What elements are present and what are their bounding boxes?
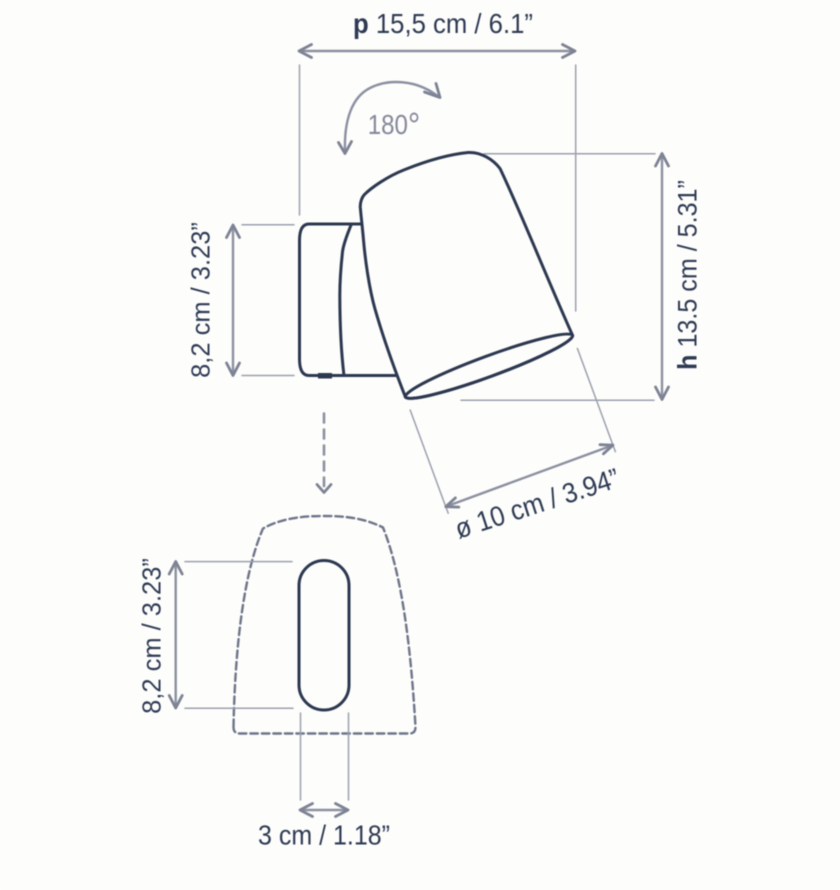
svg-text:8,2 cm / 3.23”: 8,2 cm / 3.23” — [187, 222, 215, 378]
svg-text:h 13.5 cm / 5.31”: h 13.5 cm / 5.31” — [672, 180, 703, 370]
svg-text:180°: 180° — [368, 106, 421, 146]
svg-text:p 15,5 cm / 6.1”: p 15,5 cm / 6.1” — [353, 8, 533, 39]
svg-text:8,2 cm / 3.23”: 8,2 cm / 3.23” — [138, 558, 166, 714]
svg-text:3 cm / 1.18”: 3 cm / 1.18” — [258, 819, 390, 851]
